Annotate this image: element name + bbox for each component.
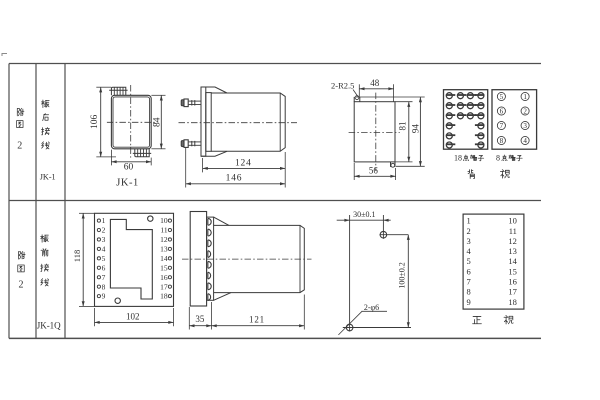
svg-text:100±0.2: 100±0.2 [398,262,407,288]
svg-text:5: 5 [102,254,106,263]
svg-text:121: 121 [249,315,265,325]
svg-text:2: 2 [467,226,471,236]
svg-text:60: 60 [124,162,134,172]
svg-text:3: 3 [523,122,527,130]
svg-text:6: 6 [500,108,504,116]
svg-text:3: 3 [467,236,471,246]
svg-text:2: 2 [102,226,106,235]
svg-text:1: 1 [102,216,106,225]
svg-text:16: 16 [508,277,517,287]
svg-text:10: 10 [160,216,168,225]
svg-text:18: 18 [160,292,168,301]
svg-text:13: 13 [160,245,168,254]
svg-text:9: 9 [102,292,106,301]
svg-text:18: 18 [508,297,517,307]
svg-text:8: 8 [496,154,500,163]
svg-text:11: 11 [509,226,517,236]
svg-text:94: 94 [410,124,420,134]
svg-text:4: 4 [102,245,106,254]
svg-text:18: 18 [454,154,462,163]
svg-text:124: 124 [235,159,252,169]
svg-text:14: 14 [508,256,517,266]
svg-text:4: 4 [523,137,527,145]
svg-text:2: 2 [19,279,24,290]
svg-text:106: 106 [90,115,100,129]
svg-text:7: 7 [102,273,106,282]
svg-text:81: 81 [397,122,407,131]
svg-text:146: 146 [226,173,243,183]
svg-text:13: 13 [508,246,517,256]
svg-text:17: 17 [160,282,168,291]
svg-text:JK-1: JK-1 [40,173,56,182]
svg-text:2-φ6: 2-φ6 [364,303,379,312]
svg-text:9: 9 [467,297,471,307]
svg-text:1: 1 [523,93,527,101]
svg-text:56: 56 [369,165,379,175]
svg-text:6: 6 [102,263,106,272]
svg-text:2: 2 [17,141,22,152]
svg-text:JK-1: JK-1 [116,177,138,188]
svg-text:14: 14 [160,254,168,263]
svg-text:35: 35 [195,314,205,324]
svg-text:8: 8 [500,137,504,145]
svg-text:3: 3 [102,235,106,244]
svg-text:8: 8 [467,287,471,297]
svg-text:8: 8 [102,282,106,291]
svg-text:118: 118 [72,250,82,262]
svg-text:10: 10 [508,216,517,226]
svg-text:7: 7 [467,277,471,287]
svg-text:16: 16 [160,273,168,282]
svg-text:2-R2.5: 2-R2.5 [331,80,354,90]
svg-text:12: 12 [508,236,517,246]
svg-text:2: 2 [523,108,527,116]
svg-text:30±0.1: 30±0.1 [353,210,375,219]
svg-text:102: 102 [126,311,140,321]
svg-text:JK-1Q: JK-1Q [37,321,61,331]
svg-text:6: 6 [467,266,471,276]
svg-text:11: 11 [160,226,167,235]
svg-text:84: 84 [153,117,163,127]
svg-text:5: 5 [500,93,504,101]
svg-text:15: 15 [160,263,168,272]
svg-text:12: 12 [160,235,168,244]
svg-text:1: 1 [467,216,471,226]
svg-text:48: 48 [370,78,380,88]
svg-text:17: 17 [508,287,517,297]
svg-text:7: 7 [500,122,504,130]
svg-text:5: 5 [467,256,471,266]
svg-text:15: 15 [508,266,517,276]
